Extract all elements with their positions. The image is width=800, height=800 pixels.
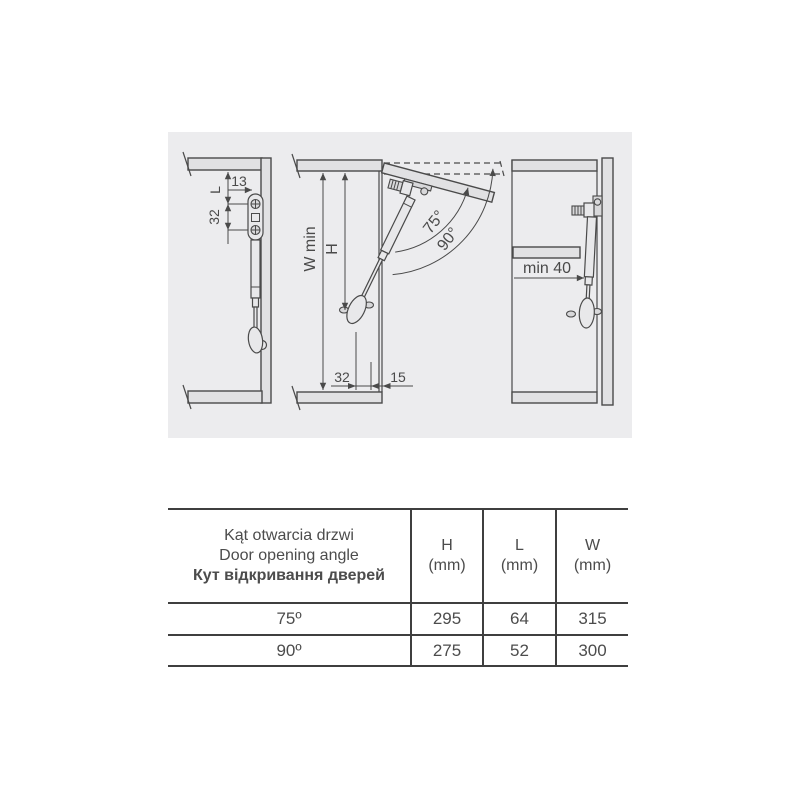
header-angle-cell: Kąt otwarcia drzwi Door opening angle Ку… (168, 510, 410, 602)
header-h-cell: H (mm) (410, 510, 482, 602)
dim-13-label: 13 (231, 173, 247, 189)
header-l-unit: (mm) (501, 556, 538, 576)
strut-end-fitting (579, 298, 596, 329)
dimension-clearance: min 40 (514, 260, 584, 278)
dimensions-open: W min H 32 15 (302, 173, 413, 390)
spec-table: Kąt otwarcia drzwi Door opening angle Ку… (168, 508, 628, 667)
header-h-unit: (mm) (428, 556, 465, 576)
technical-drawing-panel: 13 L 32 (168, 132, 632, 438)
dim-32-label: 32 (206, 209, 222, 225)
dim-32-label: 32 (334, 369, 350, 385)
header-angle-en: Door opening angle (219, 546, 359, 566)
dim-min40-label: min 40 (523, 260, 571, 277)
wing-screw (567, 311, 576, 317)
door-panel (602, 158, 613, 405)
row-75-h: 295 (410, 602, 482, 634)
diagram-shelf-clearance: min 40 (512, 158, 613, 405)
header-l-cell: L (mm) (482, 510, 555, 602)
dim-l-label: L (207, 186, 223, 194)
shelf (513, 247, 580, 258)
page: 13 L 32 (0, 0, 800, 800)
row-75-w: 315 (555, 602, 628, 634)
row-90-h: 275 (410, 634, 482, 665)
header-angle-ua: Кут відкривання дверей (193, 566, 385, 586)
row-90-l: 52 (482, 634, 555, 665)
gas-strut-drawing: 13 L 32 (168, 132, 632, 438)
row-75-l: 64 (482, 602, 555, 634)
mounting-plate (248, 194, 263, 240)
dim-15-label: 15 (390, 369, 406, 385)
dimensions-closed: 13 L 32 (206, 172, 252, 244)
door-panel (261, 158, 271, 403)
dim-h-label: H (324, 243, 341, 255)
header-w-unit: (mm) (574, 556, 611, 576)
header-l-label: L (515, 536, 524, 556)
dim-wmin-label: W min (302, 226, 319, 271)
header-angle-pl: Kąt otwarcia drzwi (224, 526, 354, 546)
row-90-angle: 90º (168, 634, 410, 665)
diagram-door-open: 75° 90° W min H 32 15 (292, 154, 504, 410)
header-w-label: W (585, 536, 600, 556)
row-75-angle: 75º (168, 602, 410, 634)
header-w-cell: W (mm) (555, 510, 628, 602)
row-90-w: 300 (555, 634, 628, 665)
diagram-door-closed: 13 L 32 (183, 152, 271, 409)
header-h-label: H (441, 536, 453, 556)
